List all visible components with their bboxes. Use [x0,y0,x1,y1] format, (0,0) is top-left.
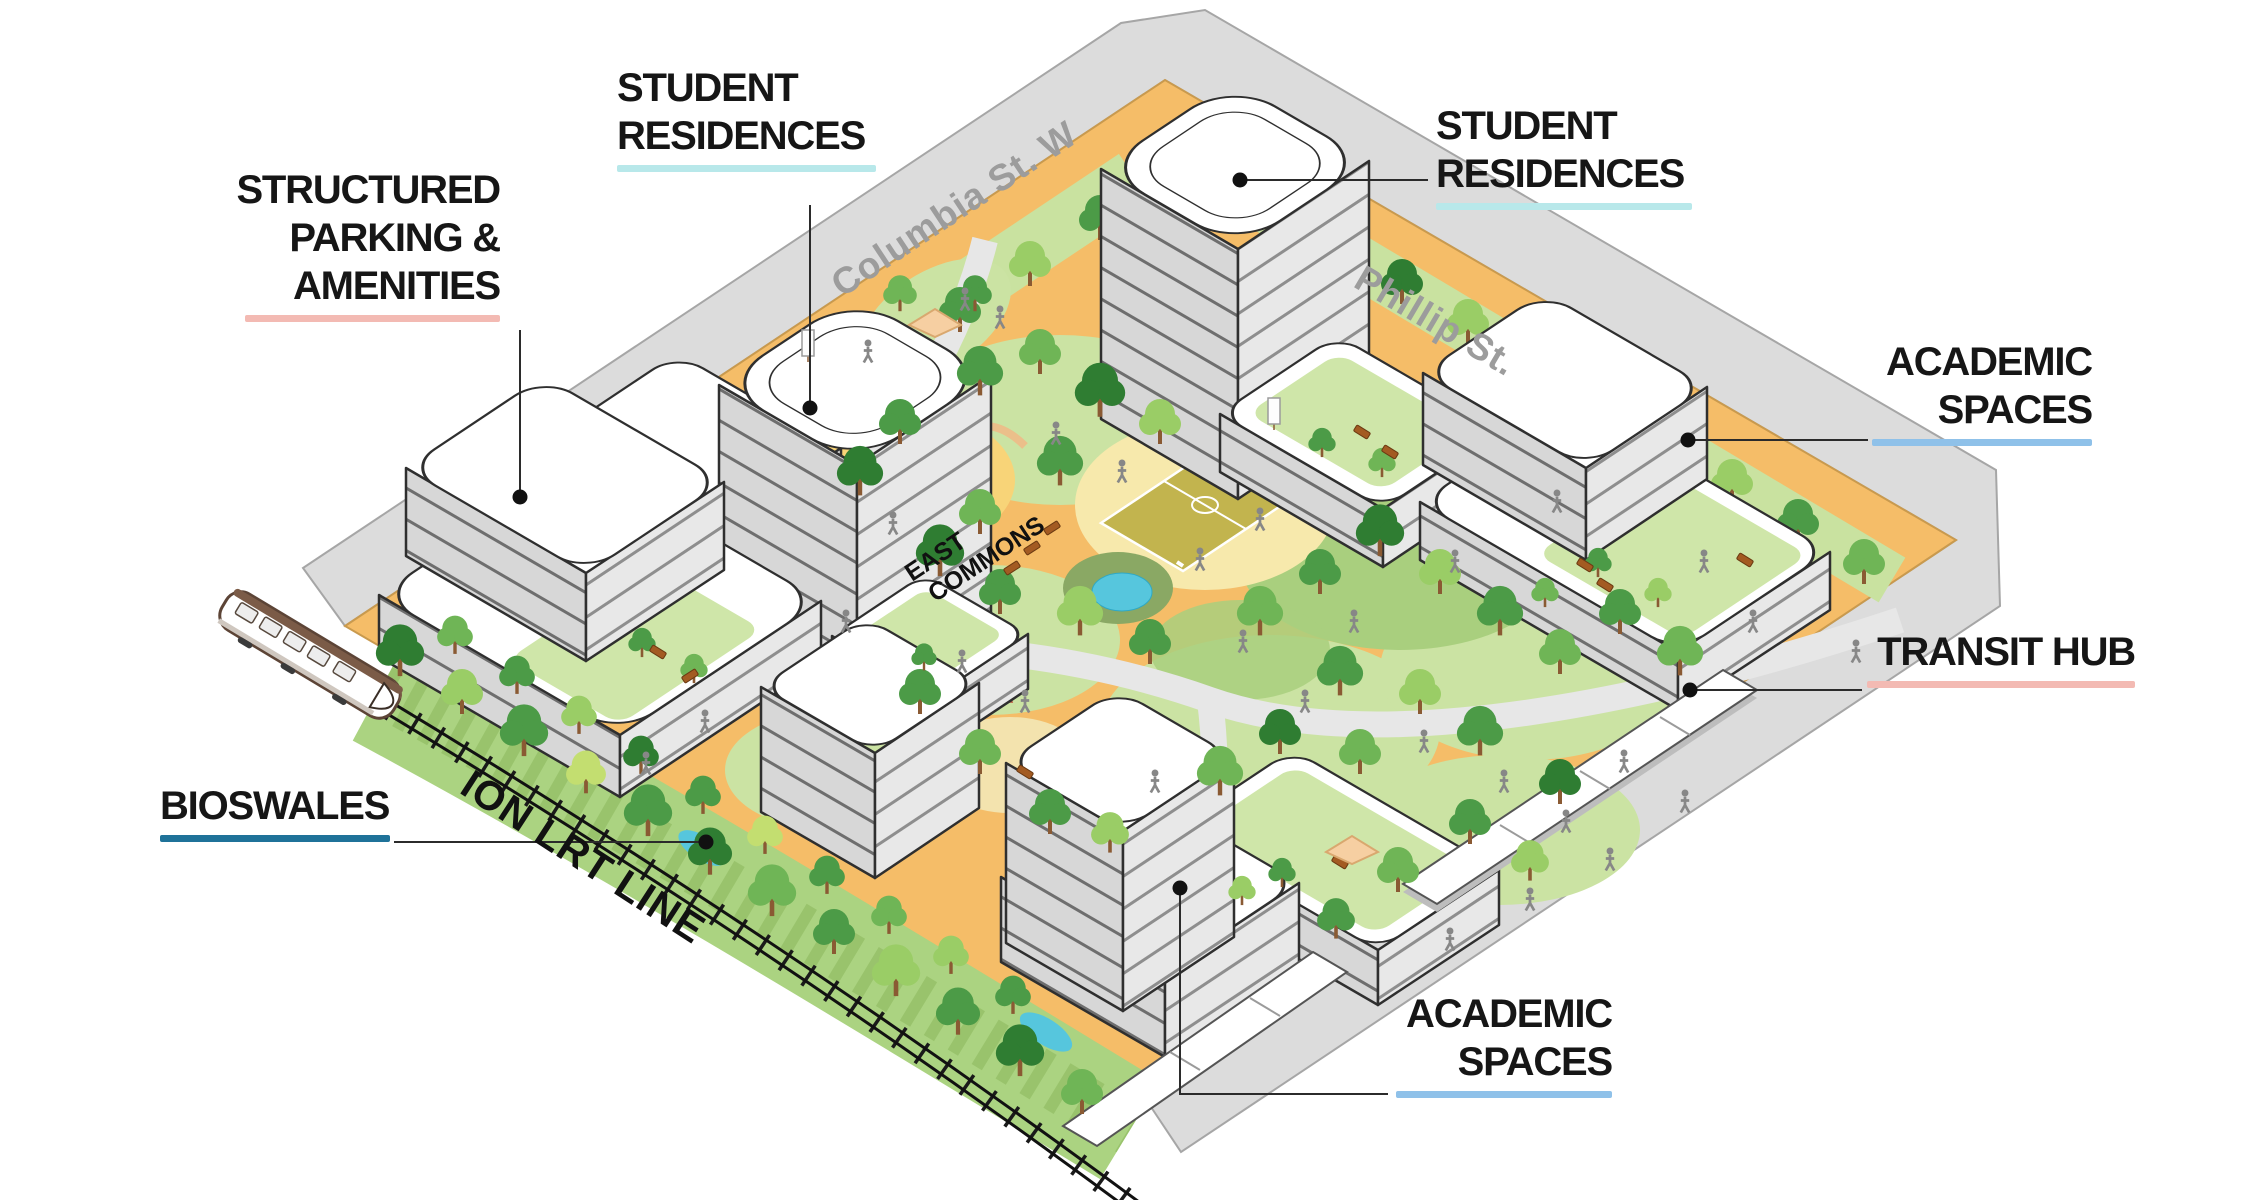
callout-line: TRANSIT HUB [1867,628,2135,676]
callout-student-residences-left: STUDENT RESIDENCES [617,64,876,172]
callout-academic-spaces-bottom: ACADEMIC SPACES [1396,990,1612,1098]
callout-transit-hub: TRANSIT HUB [1867,628,2135,688]
callout-line: PARKING & [236,214,500,262]
callout-line: AMENITIES [236,262,500,310]
callout-underline [160,835,390,842]
callout-line: ACADEMIC [1396,990,1612,1038]
callout-underline [1396,1091,1612,1098]
callout-line: STRUCTURED [236,166,500,214]
callout-academic-spaces-right: ACADEMIC SPACES [1872,338,2092,446]
callout-bioswales: BIOSWALES [160,782,390,842]
callout-line: RESIDENCES [617,112,876,160]
callout-line: SPACES [1872,386,2092,434]
callout-structured-parking: STRUCTURED PARKING & AMENITIES [236,166,500,322]
callout-underline [1867,681,2135,688]
callout-line: SPACES [1396,1038,1612,1086]
callout-underline [1872,439,2092,446]
callout-line: BIOSWALES [160,782,390,830]
callout-line: STUDENT [1436,102,1692,150]
callout-line: RESIDENCES [1436,150,1692,198]
callout-underline [245,315,500,322]
callout-underline [617,165,876,172]
callout-line: ACADEMIC [1872,338,2092,386]
callout-underline [1436,203,1692,210]
callout-line: STUDENT [617,64,876,112]
campus-plan-diagram: Columbia St. W Phillip St. EAST COMMONS … [0,0,2250,1200]
callout-student-residences-right: STUDENT RESIDENCES [1436,102,1692,210]
